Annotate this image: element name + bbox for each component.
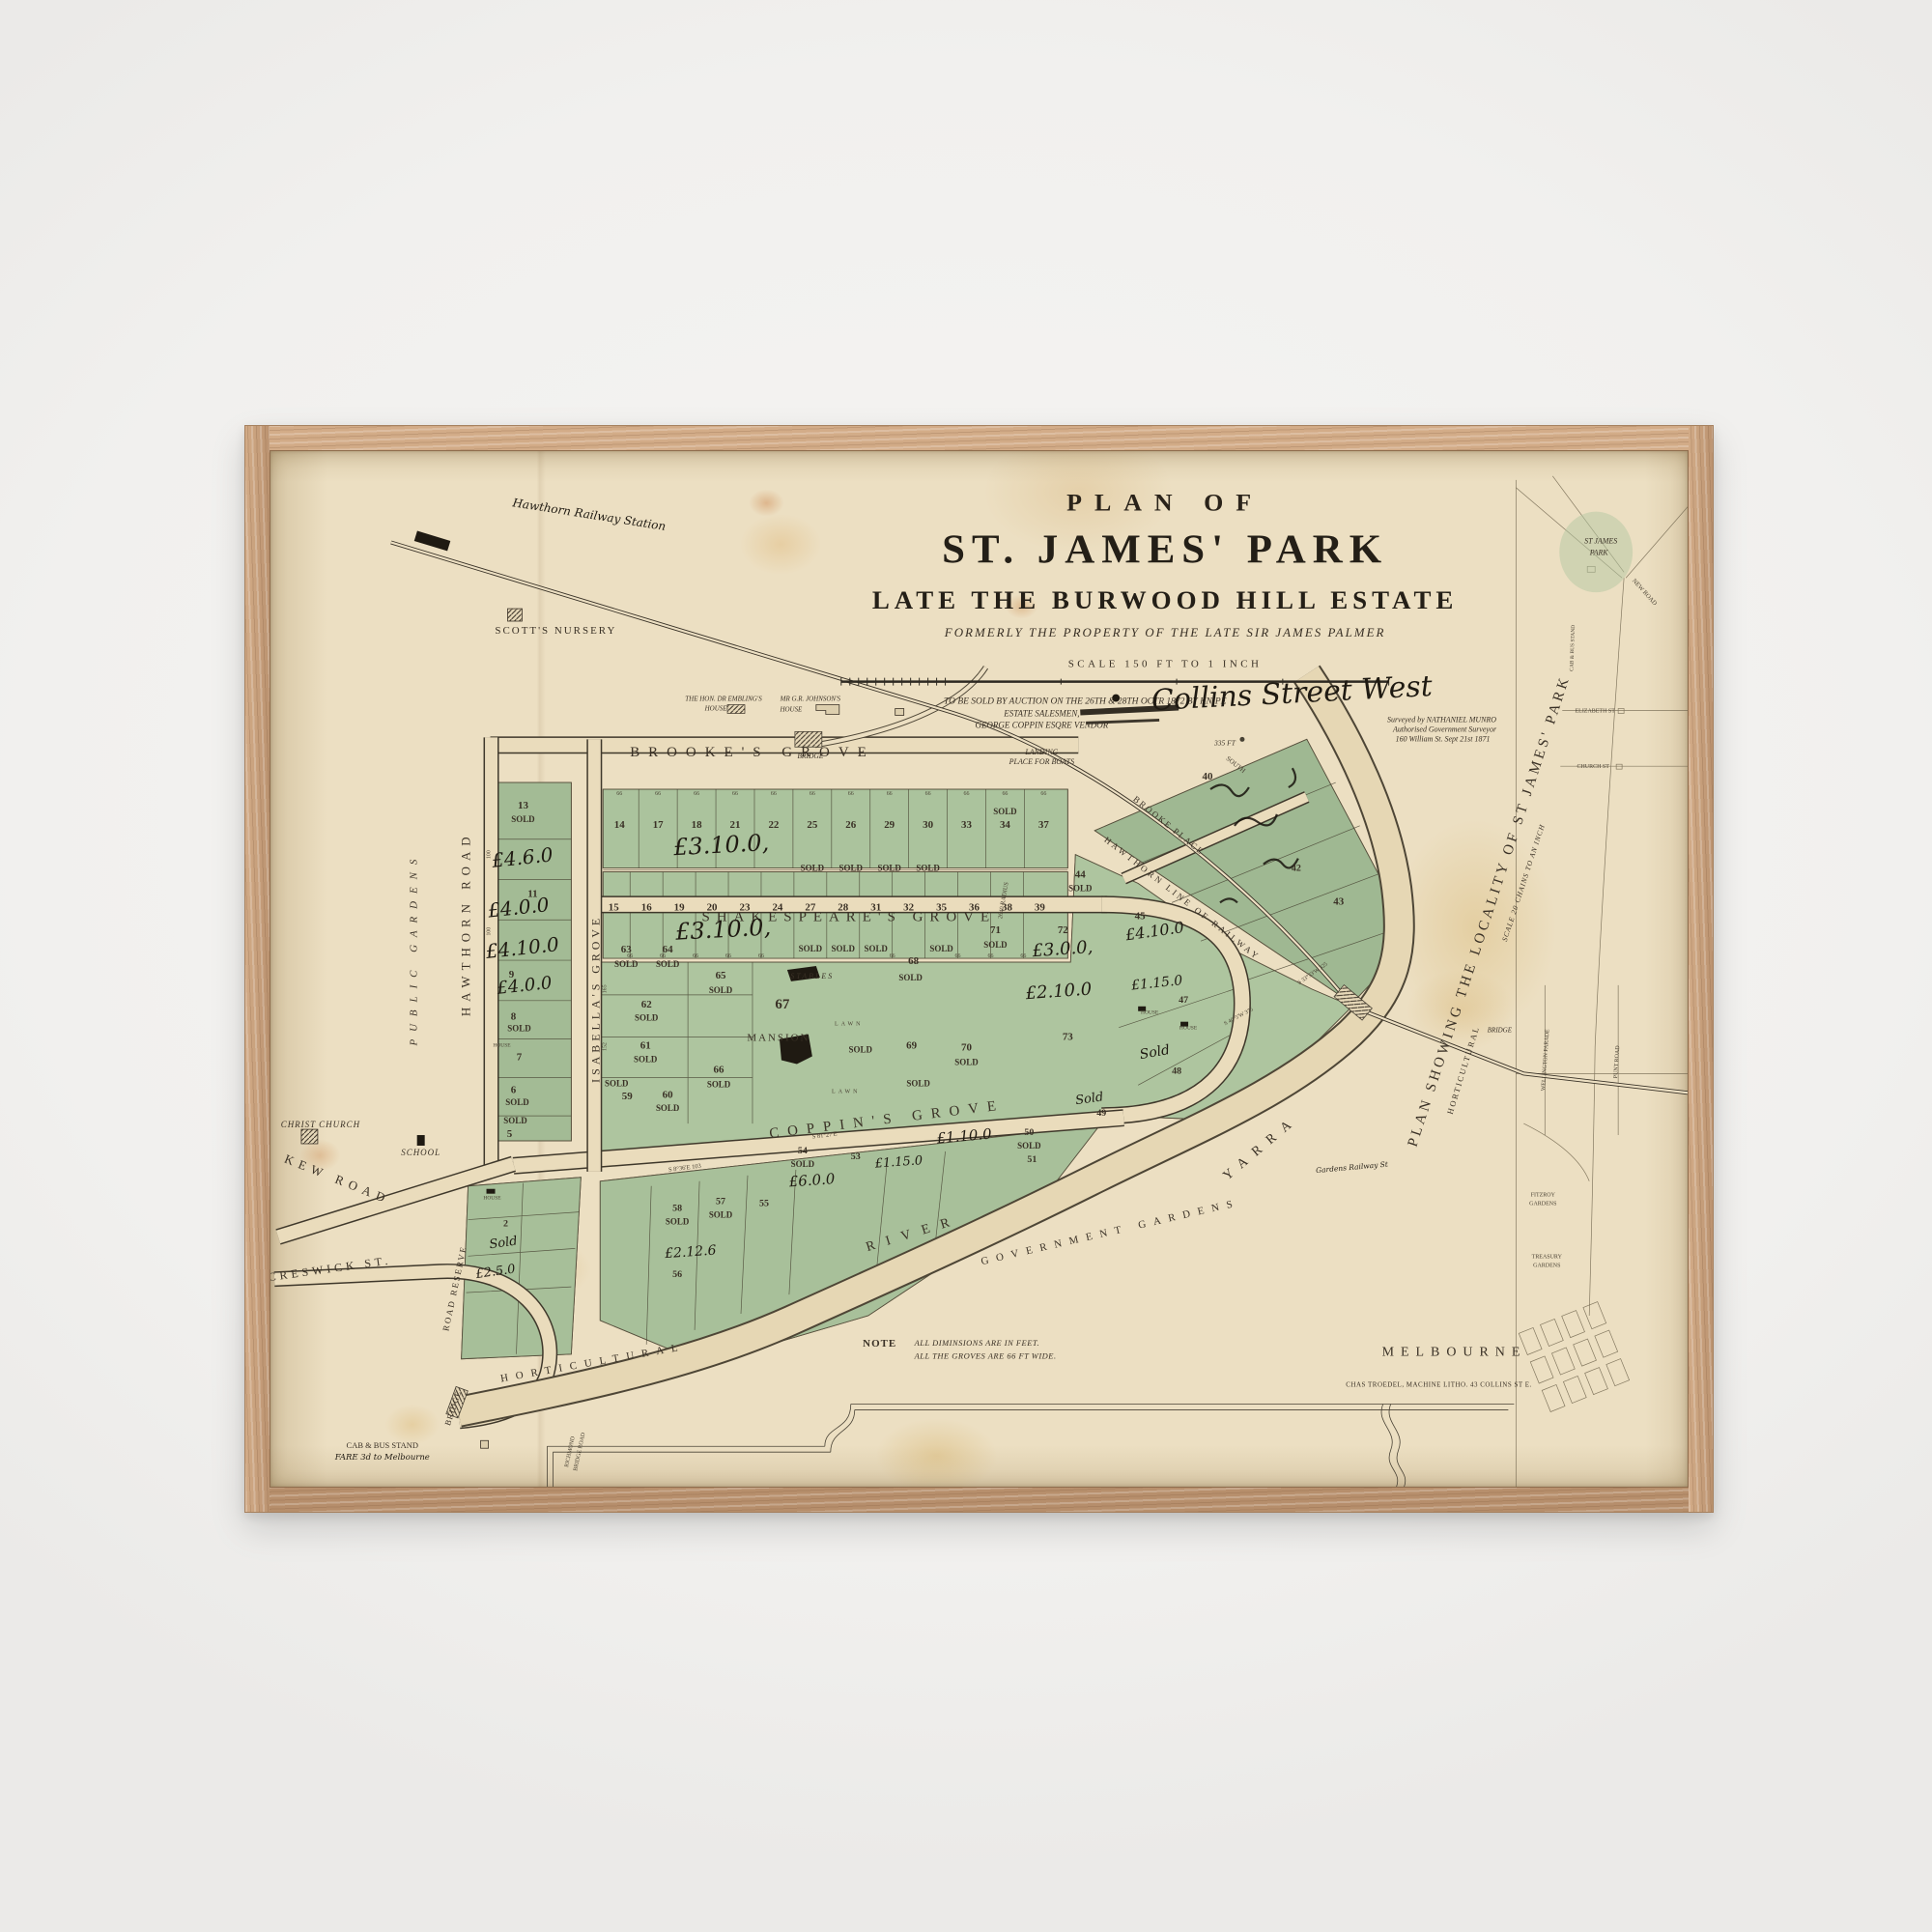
map-label: STABLES [790,972,834,980]
map-label: 152 [602,1042,608,1051]
map-label: SOLD [983,940,1008,950]
map-label: ST JAMES [1584,536,1617,545]
map-label: 56 [672,1269,682,1280]
map-label: SOLD [849,1045,873,1055]
scotts-nursery-building [507,609,522,621]
map-label: 61 [640,1040,651,1052]
map-label: 5 [507,1128,513,1140]
map-label: SOLD [1017,1141,1041,1151]
map-label: 66 [848,791,854,797]
map-label: 18 [692,819,702,831]
map-label: 335 FT [1213,738,1236,747]
map-label: SOLD [511,814,535,824]
map-label: 19 [674,901,685,913]
map-label: 66 [694,791,699,797]
map-label: ISABELLA'S GROVE [588,915,602,1083]
map-label: LANDING [1024,748,1058,756]
map-label: ESTATE SALESMEN, [1003,708,1079,718]
map-label: 54 [798,1146,808,1156]
map-label: SOLD [929,944,953,953]
map-label: SOLD [505,1097,529,1107]
map-label: 66 [771,791,777,797]
map-scale-label: SCALE 150 FT TO 1 INCH [1068,659,1263,670]
map-label: MANSION [747,1033,810,1044]
map-label: 50 [1024,1127,1034,1138]
map-label: NEW ROAD [1631,578,1659,608]
map-label: £3.10.0, [673,914,771,946]
map-label: HAWTHORN ROAD [459,831,473,1016]
map-label: SOLD [877,864,901,873]
map-label: SOLD [707,1079,731,1089]
map-label: 28 [838,901,848,913]
map-label: HOUSE [1179,1026,1198,1032]
map-label: TREASURY [1532,1254,1563,1260]
map-label: LAWN [832,1089,860,1094]
map-label: 44 [1075,869,1086,881]
map-print-paper: PLAN OF ST. JAMES' PARK LATE THE BURWOOD… [270,450,1689,1488]
map-label: SOLD [656,959,680,969]
wall-background: PLAN OF ST. JAMES' PARK LATE THE BURWOOD… [0,0,1932,1932]
note-heading: NOTE [863,1338,896,1350]
map-label: 66 [693,953,698,959]
map-label: BRIDGE [1488,1027,1513,1035]
map-label: FITZROY [1531,1193,1556,1199]
map-label: 43 [1333,895,1344,907]
map-label: 39 [1035,901,1045,913]
map-label: £6.0.0 [787,1170,836,1190]
map-label: 24 [772,901,782,913]
map-label: CAB & BUS STAND [1569,625,1577,671]
map-label: PARK [1589,548,1609,556]
map-artwork: PLAN OF ST. JAMES' PARK LATE THE BURWOOD… [270,451,1688,1487]
map-label: 70 [961,1042,972,1054]
map-label: Collins Street West [1151,669,1434,718]
map-label: SOLD [656,1103,680,1113]
map-label: 16 [641,901,652,913]
map-label: CHURCH ST [1577,764,1609,770]
map-label: KEW ROAD [282,1151,392,1207]
map-title-line3: LATE THE BURWOOD HILL ESTATE [872,585,1459,614]
map-label: CAB & BUS STAND [347,1440,418,1450]
map-label: 60 [663,1089,673,1100]
map-label: 66 [925,791,931,797]
map-label: 45 [1135,910,1146,922]
map-label: 32 [903,901,914,913]
melbourne-label: MELBOURNE [1382,1346,1527,1360]
map-label: Gardens Railway St [1316,1160,1389,1176]
map-label: 66 [655,791,661,797]
map-label: 7 [517,1051,523,1063]
map-label: 100 [487,927,493,936]
map-label: 27 [805,901,815,913]
map-label: 8 [511,1011,517,1023]
map-label: 55 [759,1199,769,1209]
map-label: SOLD [507,1024,531,1034]
map-label: 21 [730,819,741,831]
map-label: Authorised Government Surveyor [1392,724,1497,733]
map-label: 35 [936,901,947,913]
locality-inset-roads [1516,476,1688,1487]
map-label: 20 [707,901,718,913]
map-label: 160 William St. Sept 21st 1871 [1396,734,1491,743]
school-building [417,1135,425,1146]
map-label: 26 [845,819,856,831]
map-label: 22 [768,819,779,831]
map-label: 59 [622,1091,633,1102]
map-label: MR G.R. JOHNSON'S [780,696,841,703]
map-label: 2 [503,1219,508,1230]
map-label: SOLD [634,1054,658,1064]
map-label: 66 [890,953,895,959]
map-label: SOLD [709,1210,733,1220]
map-label: SOLD [503,1116,527,1125]
map-label: 13 [518,800,528,811]
map-label: CHRIST CHURCH [281,1120,360,1129]
map-label: 66 [964,791,970,797]
map-label: Surveyed by NATHANIEL MUNRO [1387,715,1496,724]
map-label: 34 [1000,819,1010,831]
melbourne-street-grid [1519,1302,1629,1412]
map-label: 165 [602,984,608,993]
map-label: 36 [969,901,980,913]
map-label: 66 [987,953,993,959]
map-label: 15 [609,901,619,913]
map-label: HOUSE [704,705,728,713]
map-label: 71 [990,924,1001,936]
map-label: WELLINGTON PARADE [1541,1029,1551,1092]
map-label: Hawthorn Railway Station [511,496,668,533]
map-label: SOLD [614,959,639,969]
map-label: 62 [641,999,652,1010]
map-label: SOLD [799,944,823,953]
note-line2: ALL THE GROVES ARE 66 FT WIDE. [914,1351,1057,1361]
map-label: HOUSE [483,1196,501,1202]
map-label: SCHOOL [401,1148,440,1157]
map-label: 14 [614,819,625,831]
map-label: SOLD [993,807,1017,816]
map-label: 58 [672,1204,682,1214]
map-label: SOLD [865,944,889,953]
bottom-border-cartouche [547,1404,1514,1487]
bus-stand-marker [481,1440,489,1448]
map-label: LAWN [835,1022,863,1028]
map-label: 6 [511,1084,517,1095]
map-label: GEORGE COPPIN ESQRE VENDOR [975,720,1108,729]
railway-station-building [414,530,451,551]
map-label: SOLD [605,1078,629,1088]
map-label: SOLD [906,1078,930,1088]
map-label: BROOKE'S GROVE [630,745,875,760]
map-label: SOLD [801,864,825,873]
map-label: 33 [961,819,972,831]
map-label: SOLD [791,1159,815,1169]
map-label: ELIZABETH ST [1576,708,1616,714]
map-title-line1: PLAN OF [1066,489,1264,517]
map-label: 29 [884,819,895,831]
map-label: 37 [1038,819,1049,831]
map-label: SCOTT'S NURSERY [495,625,616,637]
map-label: 47 [1179,995,1188,1006]
note-line1: ALL DIMINSIONS ARE IN FEET. [914,1338,1039,1348]
picture-frame: PLAN OF ST. JAMES' PARK LATE THE BURWOOD… [244,425,1714,1513]
map-label: SOLD [709,985,733,995]
map-label: 66 [810,791,815,797]
map-label: £3.0.0, [1031,937,1094,961]
map-label: SOLD [832,944,856,953]
map-label: PUBLIC GARDENS [409,852,420,1047]
map-label: 66 [1020,953,1026,959]
map-label: SOLD [1068,883,1093,893]
frame-right-moulding [1689,426,1713,1512]
lithographer-imprint: CHAS TROEDEL, MACHINE LITHO. 43 COLLINS … [1346,1381,1531,1389]
map-label: SOLD [898,973,923,982]
map-label: 73 [1063,1032,1073,1043]
map-label: 66 [714,1064,724,1075]
map-label: FARE 3d to Melbourne [334,1452,430,1462]
map-label: 66 [725,953,731,959]
johnsons-house [816,705,839,715]
map-label: 66 [627,953,633,959]
map-label: PLACE FOR BOATS [1009,757,1074,766]
map-label: 66 [732,791,738,797]
map-label: 48 [1172,1065,1181,1076]
map-label: 100 [487,850,493,859]
map-label: 67 [775,997,789,1012]
map-title-line2: ST. JAMES' PARK [942,526,1388,572]
map-label: 17 [653,819,664,831]
map-label: SOLD [839,864,864,873]
map-title-line4: FORMERLY THE PROPERTY OF THE LATE SIR JA… [944,625,1386,639]
map-label: 66 [1040,791,1046,797]
map-label: SOLD [916,864,940,873]
map-label: 72 [1058,924,1068,936]
map-label: 66 [955,953,961,959]
map-label: 25 [807,819,817,831]
map-label: 51 [1027,1154,1037,1165]
map-label: 66 [616,791,622,797]
map-label: 66 [887,791,893,797]
map-label: SOLD [954,1057,979,1066]
frame-left-moulding [245,426,270,1512]
map-label: 38 [1002,901,1012,913]
map-label: THE HON. DR EMBLING'S [685,696,762,703]
map-label: 31 [870,901,881,913]
map-label: 57 [716,1197,725,1207]
map-label: GARDENS [1533,1263,1560,1268]
map-label: 68 [908,955,919,967]
map-label: 42 [1292,864,1301,874]
map-label: 66 [660,953,666,959]
map-label: 69 [906,1040,917,1052]
map-label: GARDENS [1529,1202,1556,1207]
map-label: 40 [1203,771,1213,782]
map-label: 53 [851,1151,861,1162]
map-label: 30 [923,819,933,831]
map-label: HOUSE [1141,1010,1159,1016]
map-label: SOLD [666,1217,690,1227]
map-label: SOLD [635,1013,659,1023]
map-label: 66 [1002,791,1008,797]
map-label: 65 [716,970,726,981]
map-label: HOUSE [779,706,803,714]
map-label: £3.10.0, [671,829,769,861]
map-label: 49 [1096,1108,1106,1119]
map-label: 23 [740,901,751,913]
christ-church-building [301,1129,318,1144]
map-label: HOUSE [493,1043,511,1049]
map-label: 66 [758,953,764,959]
